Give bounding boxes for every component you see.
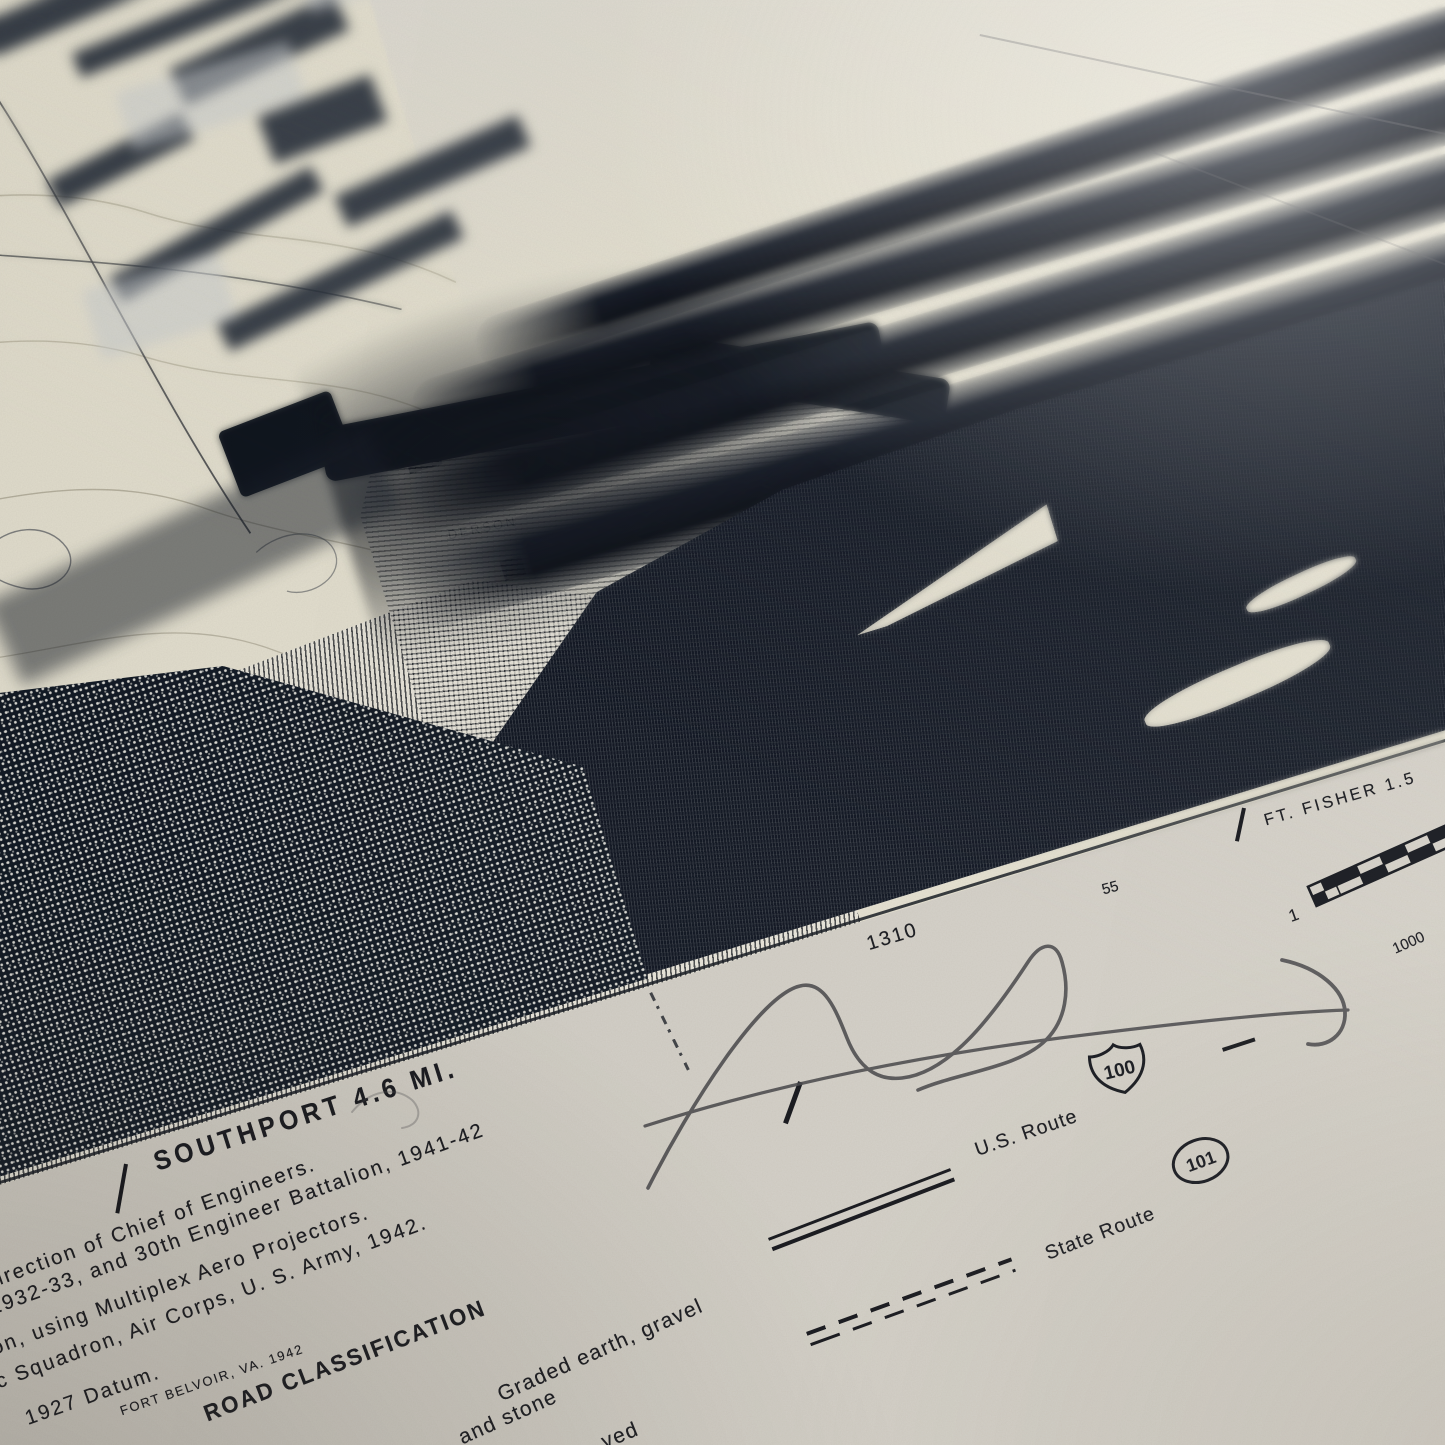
grid-number-55: 55 [1100,878,1121,899]
ft-fisher-tick [1235,808,1246,842]
sand-spit [1139,629,1336,738]
clipped-bottom-label: ved [598,1418,643,1445]
graded-earth-label-line1: Graded earth, gravel [494,1294,707,1406]
sand-spit [1242,549,1360,620]
southport-tick [115,1164,128,1214]
graded-earth-road-symbol [806,1257,1016,1346]
sand-spit [836,504,1067,635]
pencil-signature [600,920,1380,1250]
scale-bar [1306,819,1445,909]
map-photo: DERSON [0,0,1445,1445]
scale-bottom-number: 1000 [1390,928,1427,957]
